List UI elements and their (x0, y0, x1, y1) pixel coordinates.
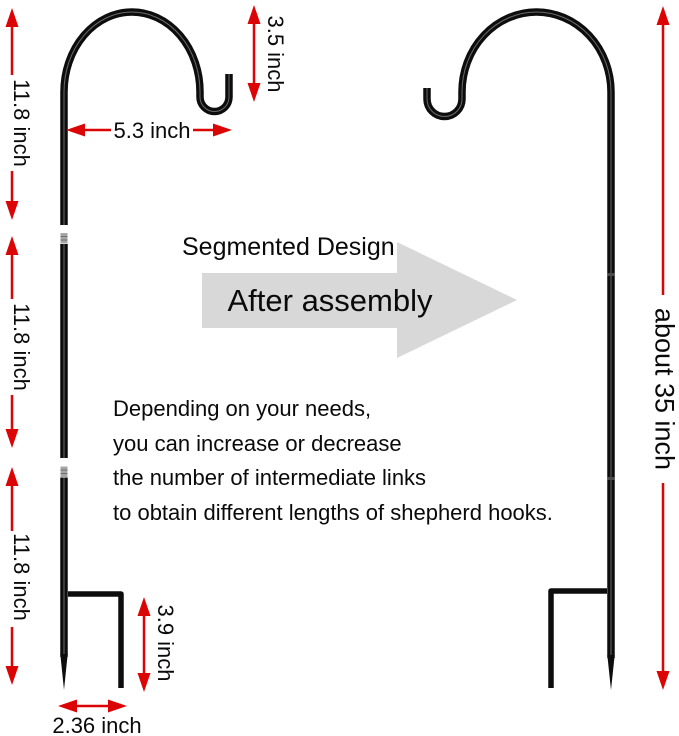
ground-support-leg-right (551, 591, 607, 688)
description-paragraph: Depending on your needs, you can increas… (113, 392, 553, 530)
arrowhead-up (6, 467, 19, 486)
diagram-graphics (0, 0, 679, 736)
segment1-length-label: 11.8 inch (8, 79, 34, 167)
arrowhead-up (6, 236, 19, 255)
arrowhead-down (6, 201, 19, 220)
description-line: you can increase or decrease (113, 427, 553, 462)
arrowhead-down (248, 83, 261, 102)
shepherd-hook-dimension-diagram: 11.8 inch 11.8 inch 11.8 inch 3.5 inch 5… (0, 0, 679, 736)
segmented-hook-figure (60, 12, 229, 690)
total-height-label: about 35 inch (649, 308, 679, 470)
assembly-joint-lower (607, 477, 614, 480)
arrowhead-down (657, 671, 670, 690)
arrowhead-up (248, 5, 261, 24)
arrowhead-down (6, 666, 19, 685)
arrowhead-up (6, 8, 19, 27)
ground-spike-right (607, 655, 614, 690)
leg-height-label: 3.9 inch (152, 604, 178, 681)
arrowhead-down (6, 429, 19, 448)
after-assembly-label: After assembly (227, 283, 432, 319)
dimension-annotations (6, 5, 670, 713)
dimension-leg-height (138, 597, 151, 692)
description-line: to obtain different lengths of shepherd … (113, 496, 553, 531)
arrowhead-left (58, 700, 77, 713)
arrowhead-up (657, 6, 670, 25)
assembled-hook-figure (427, 12, 615, 690)
segment3-threaded-connector (61, 467, 68, 478)
ground-support-leg-left (68, 594, 121, 688)
arrowhead-up (138, 597, 151, 616)
arrowhead-left (66, 124, 85, 137)
assembly-joint-upper (607, 273, 614, 276)
dimension-leg-width (58, 700, 127, 713)
ground-spike-left (60, 654, 67, 690)
hook-width-label: 5.3 inch (113, 118, 190, 144)
hook-drop-label: 3.5 inch (262, 15, 288, 92)
arrowhead-down (138, 673, 151, 692)
segment2-length-label: 11.8 inch (8, 303, 34, 391)
arrowhead-right (213, 124, 232, 137)
assembled-hook-pole (427, 12, 611, 658)
arrowhead-right (108, 700, 127, 713)
segment2-threaded-connector (61, 233, 68, 244)
dimension-hook-drop (248, 5, 261, 102)
segment3-length-label: 11.8 inch (8, 533, 34, 621)
leg-width-label: 2.36 inch (52, 713, 141, 736)
description-line: Depending on your needs, (113, 392, 553, 427)
description-line: the number of intermediate links (113, 461, 553, 496)
segmented-design-heading: Segmented Design (182, 233, 395, 262)
